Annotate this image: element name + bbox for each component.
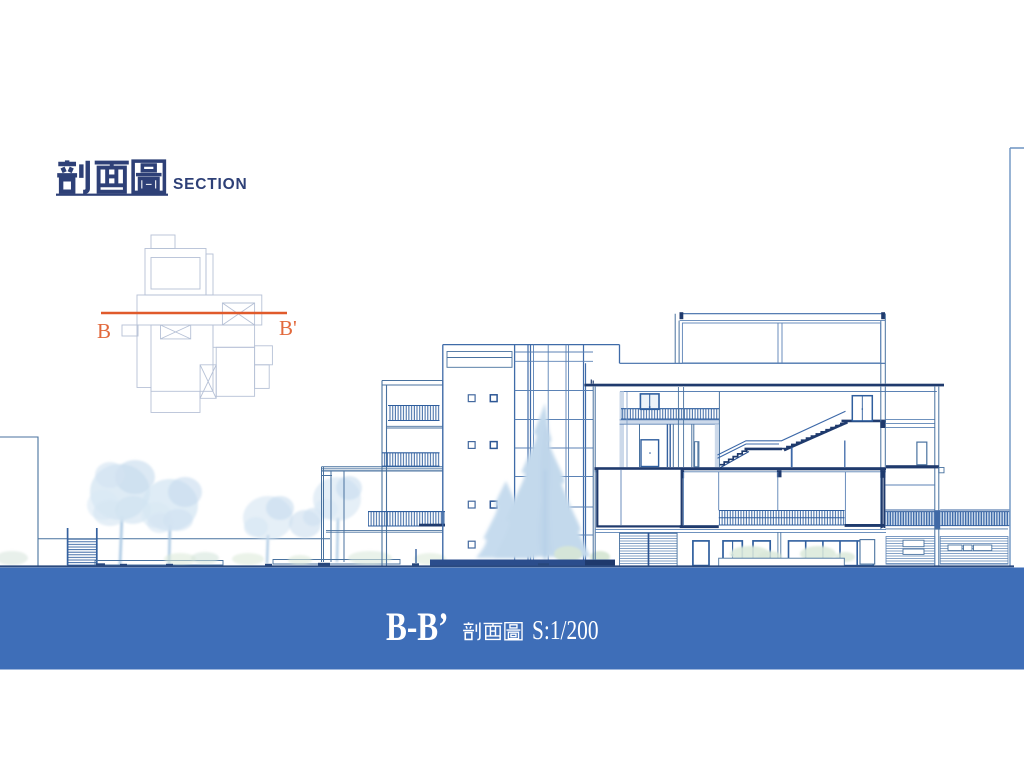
svg-text:B': B' (279, 316, 297, 340)
svg-text:B: B (97, 319, 111, 343)
svg-text:SECTION: SECTION (173, 176, 248, 193)
svg-text:B-B’: B-B’ (386, 604, 449, 649)
svg-text:S:1/200: S:1/200 (532, 614, 599, 645)
